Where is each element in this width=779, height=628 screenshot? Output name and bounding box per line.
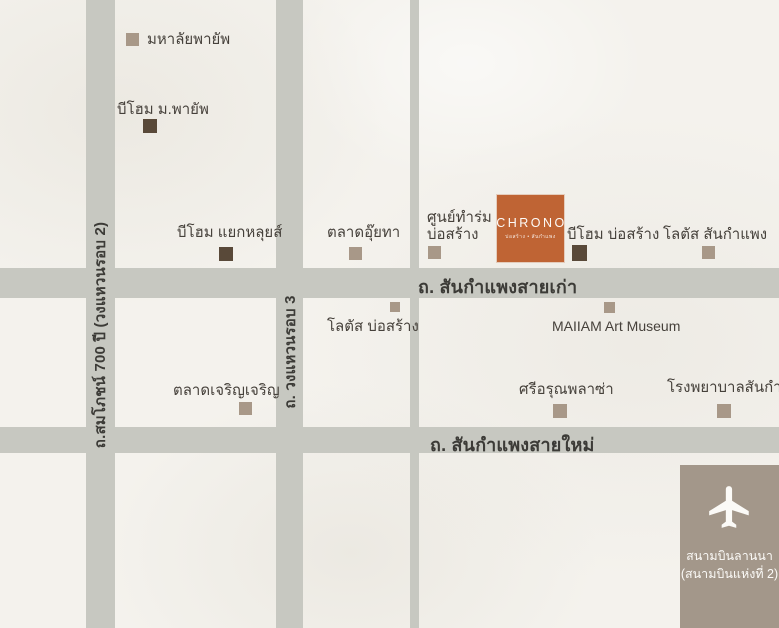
landmark-label: MAIIAM Art Museum [552,318,680,334]
road-label-ring3: ถ. วงแหวนรอบ 3 [278,295,302,408]
map-marker [239,402,252,415]
landmark-label: โลตัส บ่อสร้าง [327,318,419,335]
map-marker [702,246,715,259]
map-marker [126,33,139,46]
location-map: ถ.สมโภชน์ 700 ปี (วงแหวนรอบ 2) ถ. วงแหวน… [0,0,779,628]
map-marker [390,302,400,312]
road-label-new-road: ถ. สันกำแพงสายใหม่ [430,430,595,459]
chrono-subtitle: บ่อสร้าง • สันกำแพง [505,233,555,241]
chrono-title: CHRONO [496,216,567,230]
map-marker [604,302,615,313]
airport-box: สนามบินลานนา (สนามบินแห่งที่ 2) [680,465,779,628]
airport-label: สนามบินลานนา (สนามบินแห่งที่ 2) [680,548,779,583]
landmark-label: บีโฮม บ่อสร้าง [567,226,659,243]
landmark-label: โลตัส สันกำแพง [663,226,767,243]
airport-label-line2: (สนามบินแห่งที่ 2) [680,566,779,584]
road-sankamphaeng-old [0,268,779,298]
road-minor-vertical [410,0,419,628]
landmark-label: ตลาดอุ๊ยทา [327,224,400,241]
chrono-logo: CHRONO บ่อสร้าง • สันกำแพง [497,195,564,262]
road-label-old-road: ถ. สันกำแพงสายเก่า [418,272,577,301]
road-label-ring2: ถ.สมโภชน์ 700 ปี (วงแหวนรอบ 2) [88,222,112,448]
map-marker [428,246,441,259]
map-marker [553,404,567,418]
landmark-label: บีโฮม แยกหลุยส์ [177,224,282,241]
airport-label-line1: สนามบินลานนา [680,548,779,566]
map-marker [572,245,587,261]
landmark-label: ตลาดเจริญเจริญ [173,382,280,399]
map-marker [717,404,731,418]
landmark-label: มหาลัยพายัพ [147,31,230,48]
landmark-label: ศรีอรุณพลาซ่า [519,381,614,398]
road-sankamphaeng-new [0,427,779,453]
map-marker [349,247,362,260]
landmark-label: โรงพยาบาลสันกำแพง [667,379,779,396]
airplane-icon [703,482,757,532]
landmark-label: บีโฮม ม.พายัพ [117,101,209,118]
landmark-label: ศูนย์ทำร่ม บ่อสร้าง [427,209,492,244]
map-marker [219,247,233,261]
map-marker [143,119,157,133]
